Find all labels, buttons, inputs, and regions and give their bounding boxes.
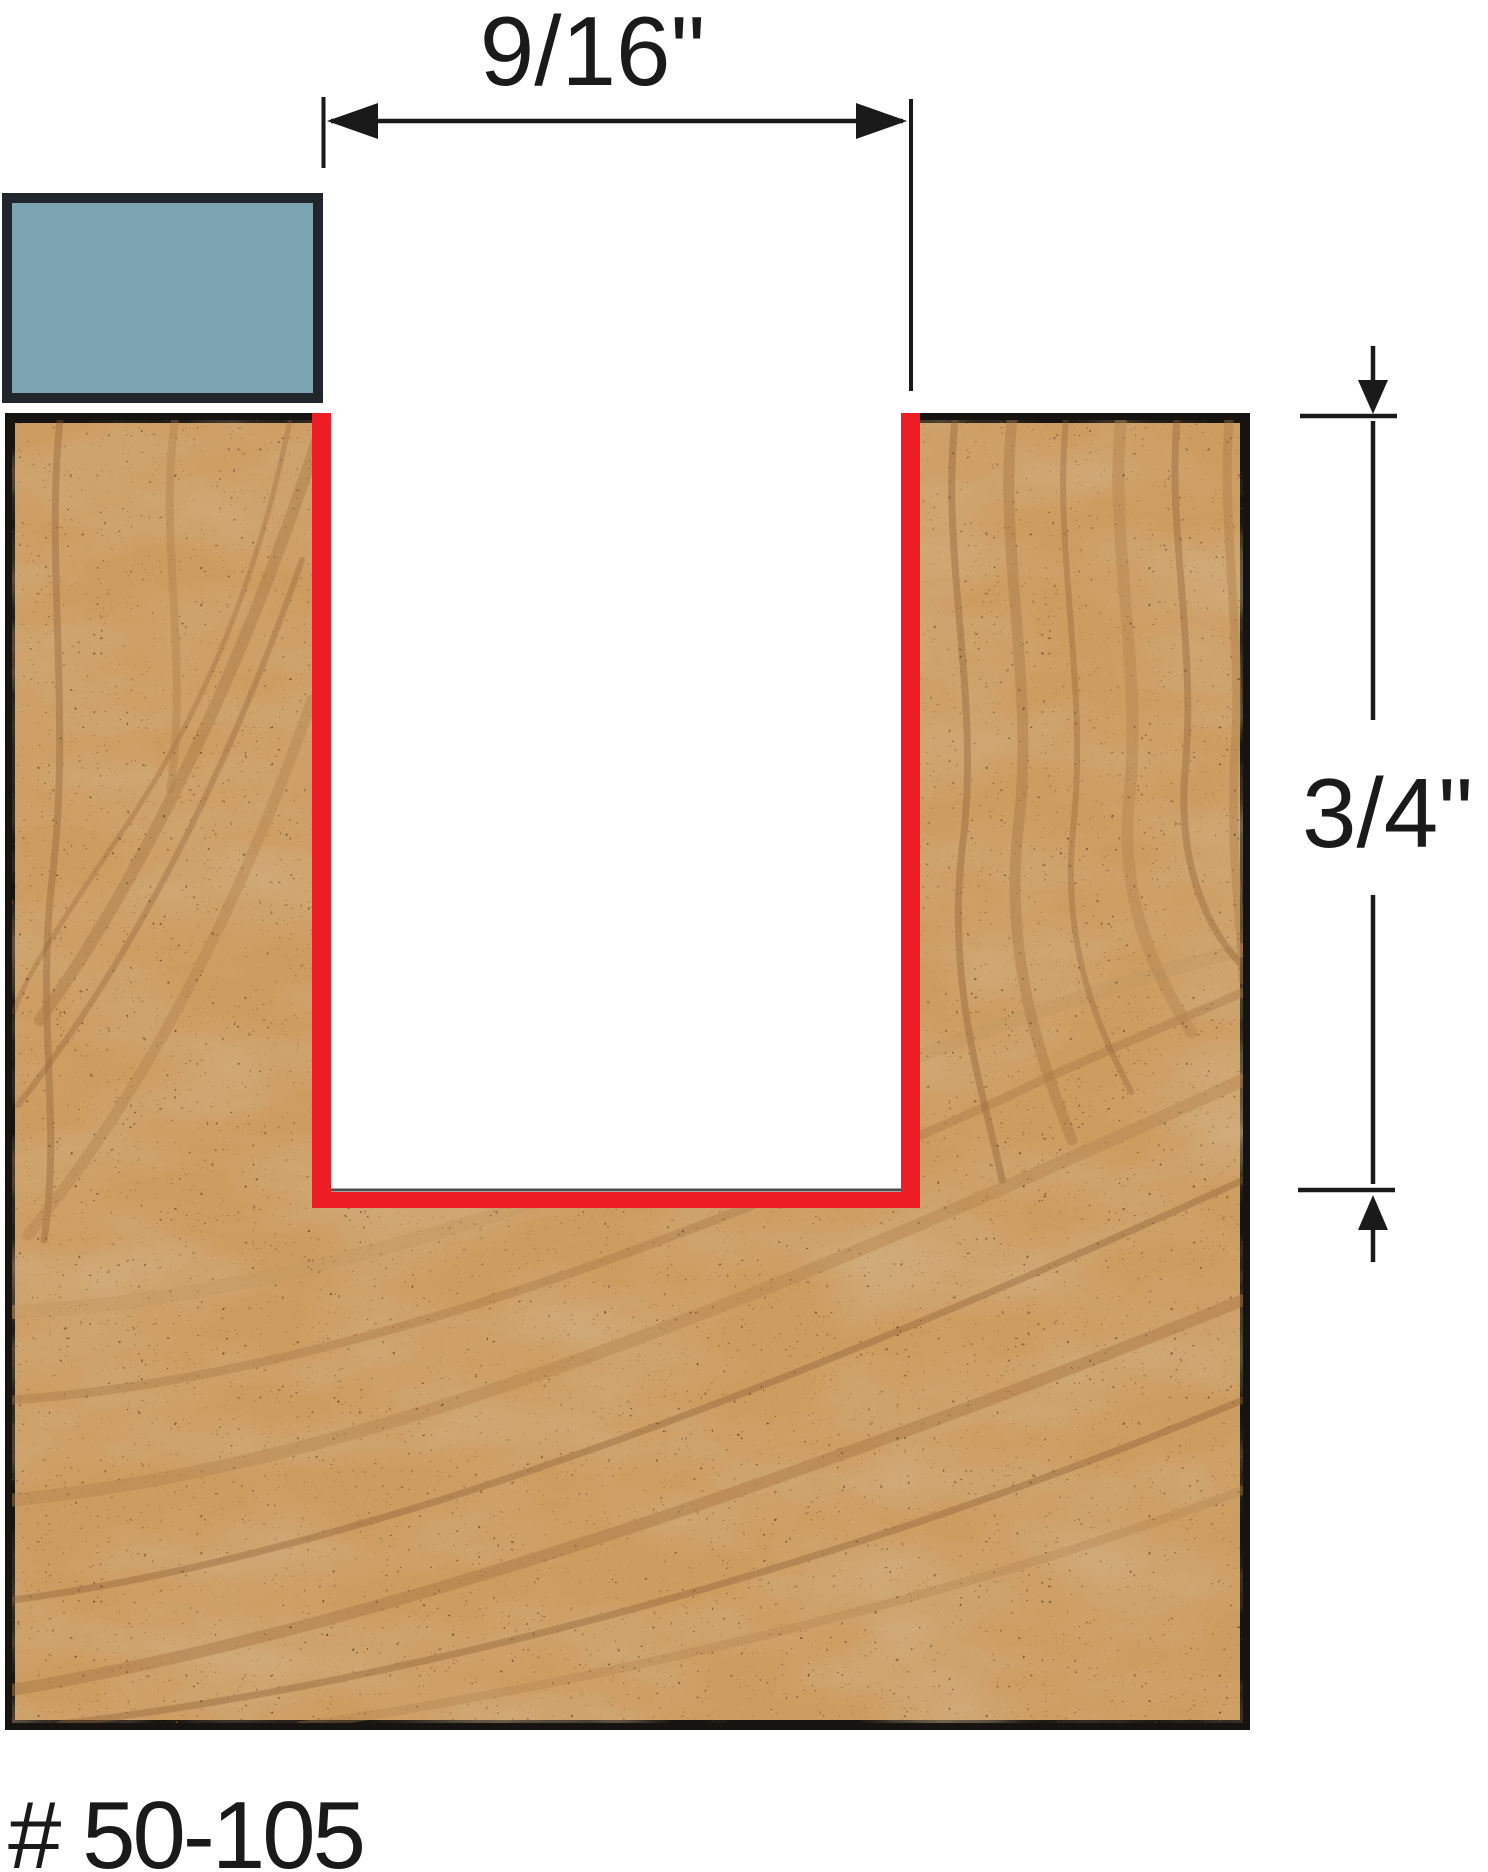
groove-bottom-cut-edge	[312, 1192, 920, 1208]
router-bit-profile-diagram: 9/16" 3/4" # 50-105	[0, 0, 1488, 1872]
diagram-canvas	[0, 0, 1488, 1872]
width-dimension-label: 9/16"	[450, 2, 735, 100]
width-arrow-right-icon	[856, 103, 907, 139]
depth-arrow-down-icon	[1358, 380, 1388, 414]
depth-dimension-label: 3/4"	[1302, 764, 1473, 862]
part-number-label: # 50-105	[8, 1788, 363, 1872]
width-arrow-left-icon	[327, 103, 378, 139]
groove-right-cut-edge	[901, 413, 920, 1208]
groove-opening	[312, 407, 920, 1192]
groove-left-cut-edge	[312, 413, 331, 1208]
depth-arrow-up-icon	[1358, 1195, 1388, 1230]
width-dimension	[324, 97, 912, 391]
router-bit-shank	[7, 198, 318, 398]
